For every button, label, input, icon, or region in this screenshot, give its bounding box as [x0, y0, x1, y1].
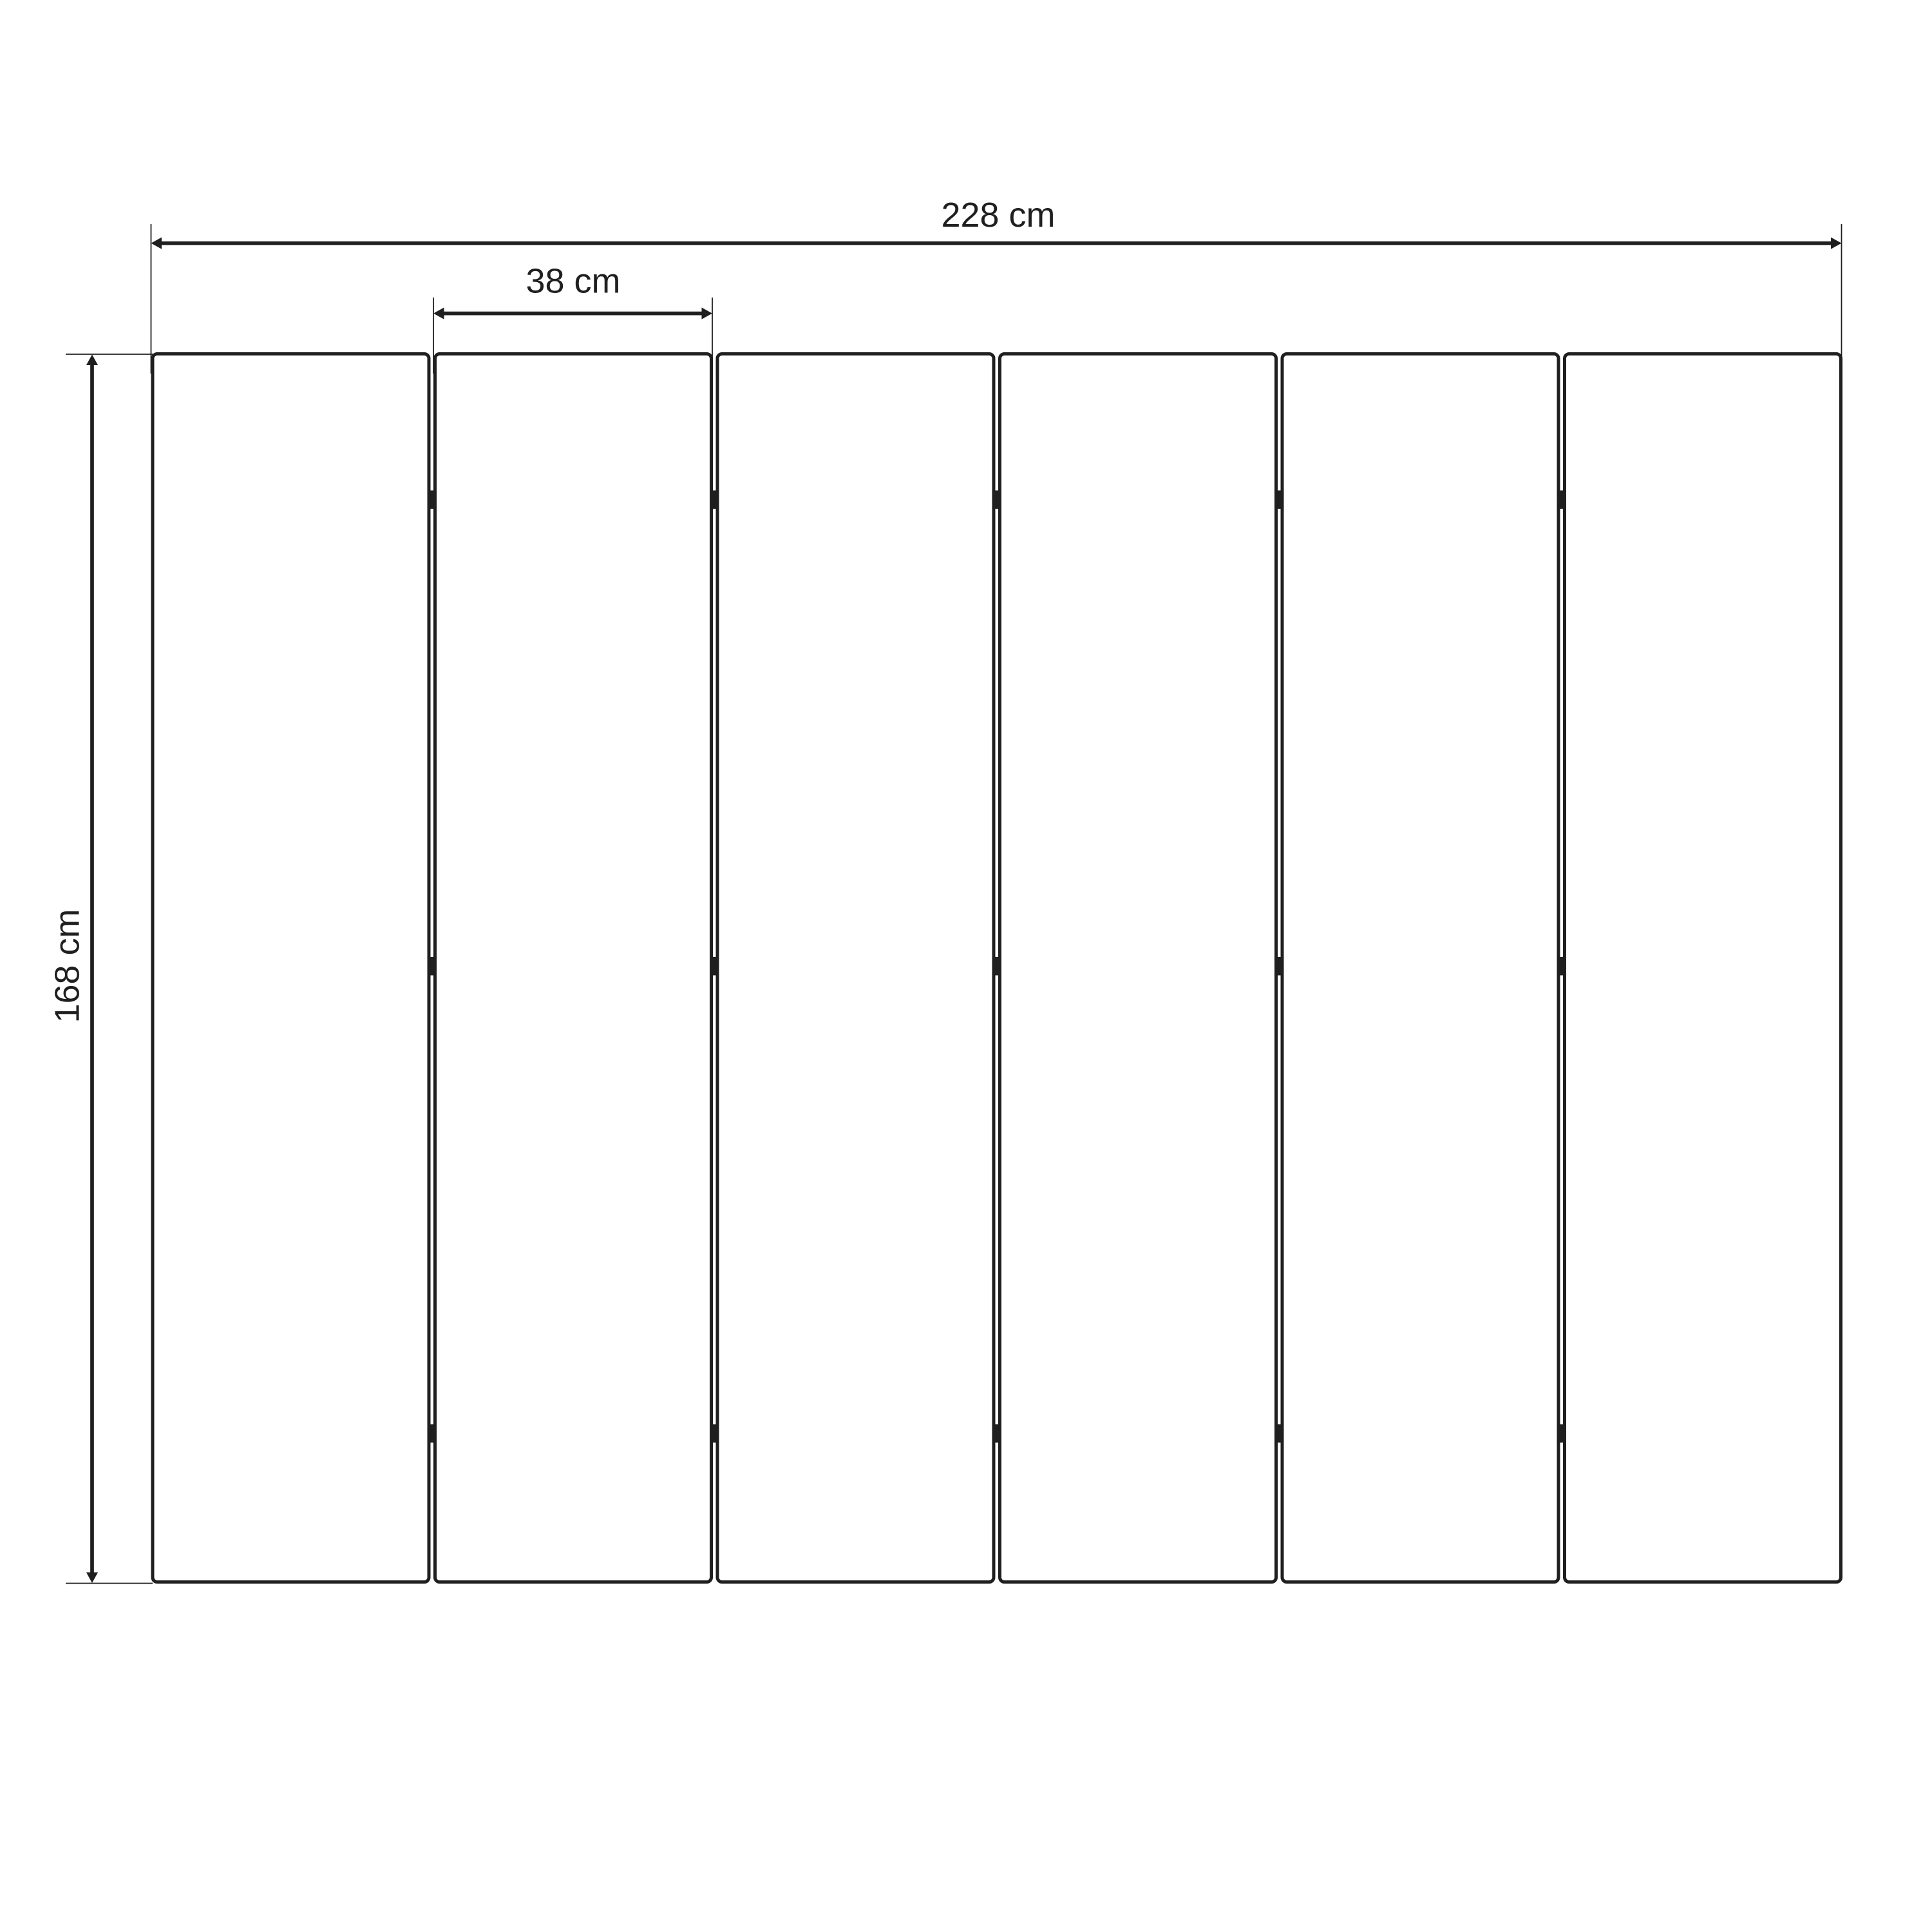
svg-text:38 cm: 38 cm — [526, 262, 620, 301]
svg-text:168 cm: 168 cm — [48, 909, 87, 1023]
svg-text:228 cm: 228 cm — [941, 196, 1055, 234]
